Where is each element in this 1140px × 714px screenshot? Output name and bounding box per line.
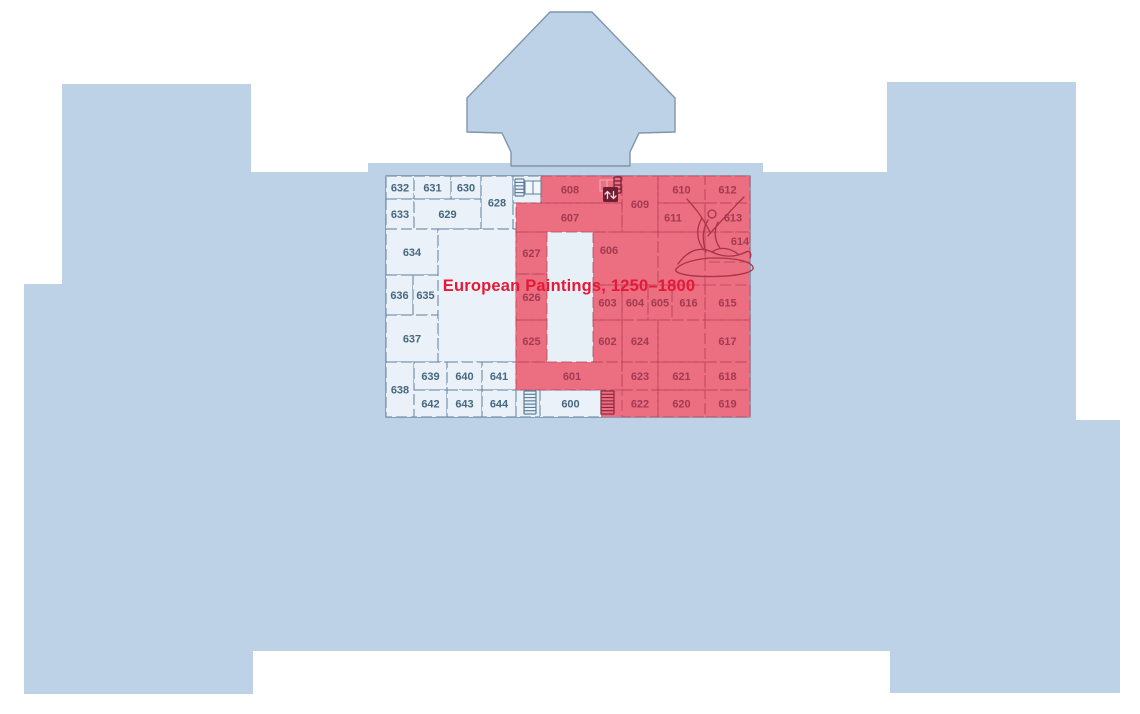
room-label-620: 620 [672,399,690,411]
room-label-624: 624 [631,336,650,348]
room-label-618: 618 [718,371,736,383]
met-floor-map: 6326316306286336296346366356376386396406… [0,0,1140,714]
building-east-wing [887,82,1076,202]
room-label-630: 630 [457,183,475,195]
room-label-642: 642 [421,399,439,411]
room-label-635: 635 [416,290,434,302]
room-label-632: 632 [391,183,409,195]
room-label-627: 627 [522,248,540,260]
room-label-605: 605 [651,298,669,310]
room-label-607: 607 [561,213,579,225]
room-label-612: 612 [718,185,736,197]
room-label-601: 601 [563,371,581,383]
building-south-east-foot [890,651,1120,693]
room-label-638: 638 [391,385,409,397]
room-label-608: 608 [561,185,579,197]
room-label-636: 636 [390,290,408,302]
room-label-609: 609 [631,199,649,211]
building-north-apse [467,12,675,166]
room-label-604: 604 [626,298,645,310]
room-label-616: 616 [679,298,697,310]
floor-map-canvas: 6326316306286336296346366356376386396406… [0,0,1140,714]
room-label-629: 629 [438,209,456,221]
room-label-602: 602 [598,336,616,348]
room-label-615: 615 [718,298,736,310]
room-label-622: 622 [631,399,649,411]
room-label-644: 644 [490,399,509,411]
room-label-611: 611 [664,213,682,225]
room-label-600: 600 [561,399,579,411]
building-south-west-foot [24,284,253,694]
room-label-610: 610 [672,185,690,197]
room-label-623: 623 [631,371,649,383]
room-label-619: 619 [718,399,736,411]
highlight-title: European Paintings, 1250–1800 [443,277,696,295]
room-label-641: 641 [490,371,508,383]
room-label-628: 628 [488,198,506,210]
room-label-634: 634 [403,247,422,259]
room-label-639: 639 [421,371,439,383]
room-label-637: 637 [403,334,421,346]
room-label-603: 603 [598,298,616,310]
central-court-void [547,232,593,362]
room-label-617: 617 [718,336,736,348]
floor-plan: 6326316306286336296346366356376386396406… [386,176,753,417]
room-label-631: 631 [423,183,441,195]
room-label-606: 606 [600,245,618,257]
room-label-614: 614 [731,236,750,248]
room-unlabeled [438,229,516,362]
room-label-621: 621 [672,371,690,383]
room-label-625: 625 [522,336,540,348]
room-label-643: 643 [455,399,473,411]
room-label-640: 640 [455,371,473,383]
room-label-633: 633 [391,209,409,221]
